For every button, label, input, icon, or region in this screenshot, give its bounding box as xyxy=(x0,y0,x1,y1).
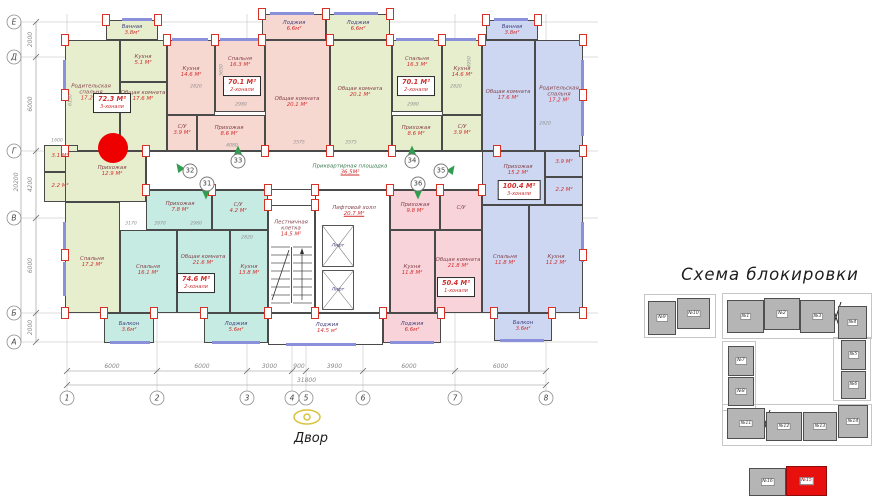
scheme-block: №3 xyxy=(800,300,835,333)
scheme-block-label: №13 xyxy=(813,423,827,431)
scheme-block-label: №3 xyxy=(812,313,824,321)
courtyard-label: Двор xyxy=(276,431,346,446)
scheme-block-label: №14 xyxy=(846,418,860,426)
scheme-block: №13 xyxy=(803,412,837,441)
scheme-block: №8 xyxy=(728,377,754,406)
scheme-block: №10 xyxy=(677,298,710,329)
blocking-scheme: №9№10№1№2№3№4№5№6№7№8№11№12№13№14№16№15 xyxy=(0,0,888,499)
scheme-legend-label: №15 xyxy=(799,477,813,485)
scheme-block: №9 xyxy=(648,301,676,335)
scheme-block: №1 xyxy=(727,300,764,333)
scheme-block: №7 xyxy=(728,346,754,376)
scheme-block-label: №7 xyxy=(735,357,747,365)
scheme-block-label: №10 xyxy=(686,310,700,318)
scheme-block: №11 xyxy=(727,408,765,439)
scheme-block: №14 xyxy=(838,405,868,438)
scheme-block-label: №1 xyxy=(740,313,752,321)
scheme-block-label: №4 xyxy=(847,319,859,327)
scheme-block: №2 xyxy=(764,298,800,330)
scheme-legend-label: №16 xyxy=(760,478,774,486)
scheme-block: №12 xyxy=(766,412,802,441)
scheme-block-label: №6 xyxy=(848,381,860,389)
scheme-block-label: №8 xyxy=(735,388,747,396)
scheme-block-label: №2 xyxy=(776,310,788,318)
scheme-block-label: №9 xyxy=(656,314,668,322)
scheme-block: №4 xyxy=(838,306,867,339)
scheme-block: №5 xyxy=(841,340,866,370)
floor-plan-drawing: ЕДГВБА1234567860006000300090039006000600… xyxy=(0,0,888,499)
scheme-legend-block: №16 xyxy=(749,468,786,496)
scheme-block-label: №5 xyxy=(848,351,860,359)
scheme-legend-block: №15 xyxy=(786,466,827,496)
scheme-block-label: №11 xyxy=(739,420,753,428)
scheme-block-label: №12 xyxy=(777,423,791,431)
scheme-block: №6 xyxy=(841,371,866,399)
